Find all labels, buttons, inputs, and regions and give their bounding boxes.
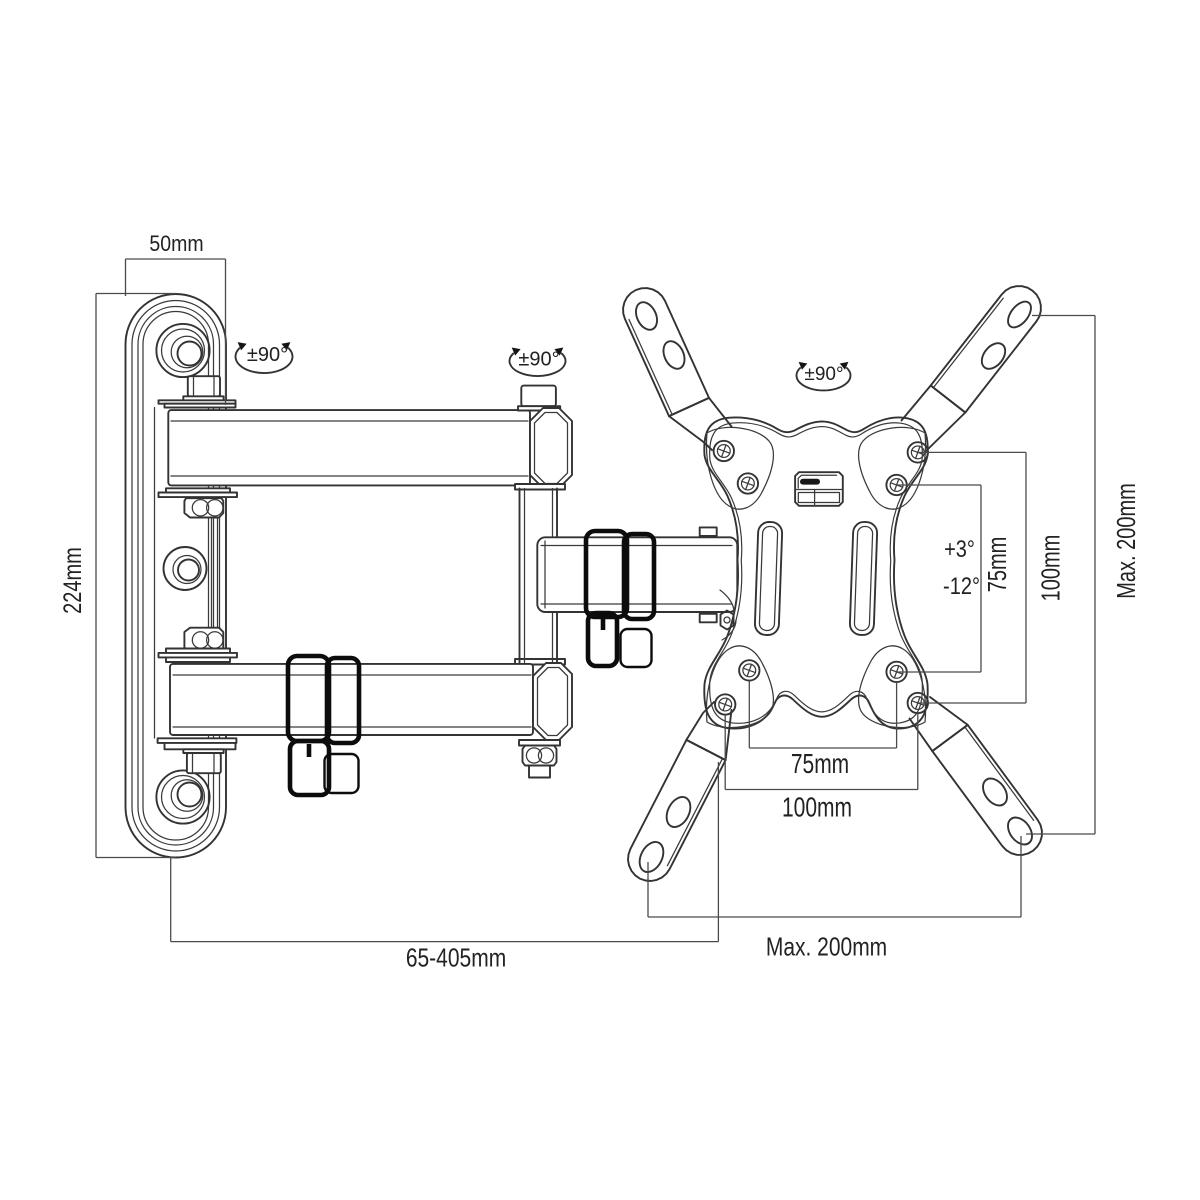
svg-text:±90°: ±90° [247, 344, 288, 366]
svg-text:50mm: 50mm [149, 232, 203, 256]
svg-text:±90°: ±90° [518, 349, 559, 371]
svg-text:224mm: 224mm [59, 547, 87, 614]
svg-text:Max. 200mm: Max. 200mm [766, 932, 887, 962]
svg-text:100mm: 100mm [1036, 535, 1065, 602]
svg-text:+3°: +3° [944, 535, 975, 562]
svg-text:65-405mm: 65-405mm [406, 943, 506, 973]
svg-text:100mm: 100mm [782, 793, 852, 823]
svg-text:75mm: 75mm [982, 537, 1011, 593]
svg-text:-12°: -12° [943, 572, 980, 599]
svg-text:±90°: ±90° [804, 364, 843, 385]
svg-text:Max. 200mm: Max. 200mm [1111, 483, 1140, 599]
svg-text:75mm: 75mm [791, 749, 849, 779]
